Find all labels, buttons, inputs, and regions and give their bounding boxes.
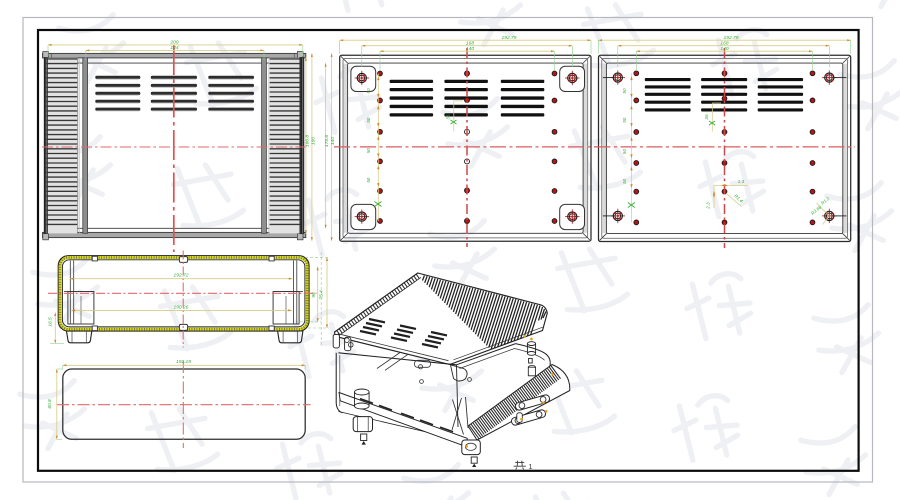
- svg-text:168: 168: [466, 40, 474, 46]
- svg-text:50: 50: [622, 178, 627, 184]
- svg-text:140: 140: [720, 46, 728, 52]
- svg-text:16.5: 16.5: [48, 317, 54, 327]
- svg-text:36: 36: [445, 114, 450, 120]
- svg-text:50: 50: [366, 177, 371, 183]
- svg-text:50: 50: [366, 88, 371, 94]
- svg-text:190: 190: [310, 137, 316, 145]
- svg-text:192.79: 192.79: [502, 35, 517, 41]
- svg-text:75.4: 75.4: [319, 290, 325, 300]
- svg-text:50: 50: [622, 117, 627, 123]
- svg-text:50: 50: [622, 88, 627, 94]
- svg-text:50: 50: [622, 149, 627, 155]
- svg-text:140: 140: [466, 46, 474, 52]
- svg-text:192.79: 192.79: [724, 35, 739, 41]
- svg-text:50: 50: [366, 148, 371, 154]
- svg-text:140: 140: [330, 137, 336, 145]
- svg-text:50: 50: [366, 117, 371, 123]
- svg-text:200: 200: [169, 39, 178, 45]
- svg-text:190.26: 190.26: [174, 304, 189, 310]
- svg-text:2.3: 2.3: [706, 202, 711, 210]
- svg-text:175.6: 175.6: [324, 135, 330, 148]
- svg-text:144: 144: [170, 45, 178, 51]
- svg-text:192.72: 192.72: [174, 273, 189, 279]
- svg-text:192.19: 192.19: [176, 359, 191, 365]
- svg-text:1.3: 1.3: [738, 179, 745, 184]
- svg-text:96: 96: [311, 292, 317, 298]
- svg-text:60.8: 60.8: [47, 399, 53, 409]
- svg-text:166.8: 166.8: [304, 135, 310, 148]
- svg-text:1: 1: [528, 462, 532, 471]
- svg-text:168: 168: [720, 40, 728, 46]
- svg-text:36: 36: [704, 114, 709, 120]
